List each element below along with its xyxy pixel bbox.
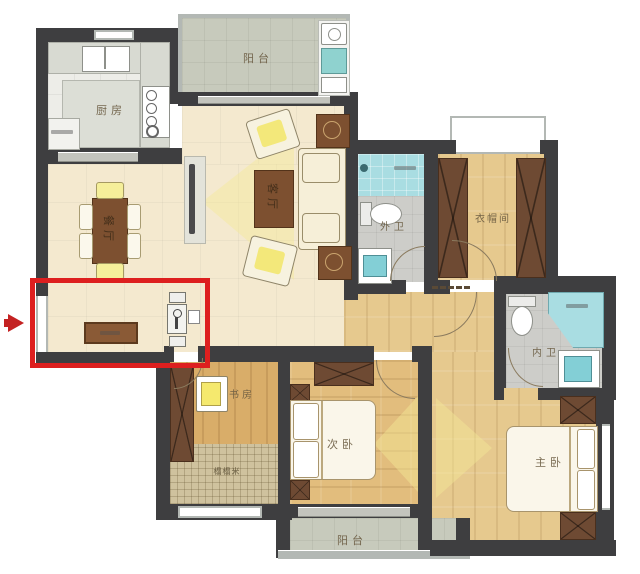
second-bedroom-dresser <box>314 362 374 386</box>
dining-chair-left-1 <box>79 204 93 230</box>
wall-cloakroom-east <box>544 140 558 294</box>
master-bath-shower-mini-label <box>566 304 588 308</box>
master-bath-toilet-bowl <box>511 306 533 336</box>
balcony-sliding-door <box>198 96 330 104</box>
guest-bath-shower-mini-label <box>394 166 416 170</box>
kitchen-label: 厨房 <box>76 102 146 118</box>
master-bedroom-nightstand-top <box>560 396 596 424</box>
wall-master-bath-south-left <box>494 388 504 400</box>
sofa <box>298 148 346 250</box>
washing-machine-icon <box>321 23 347 45</box>
stove-burner <box>146 103 157 114</box>
wall-guest-bath-cloakroom-divider <box>424 142 438 294</box>
guest-bath-label: 外卫 <box>372 218 416 233</box>
wall-master-bath-north <box>494 276 616 292</box>
kitchen-stove <box>142 86 170 138</box>
dining-chair-top <box>96 182 124 199</box>
wall-master-bath-west <box>494 288 506 388</box>
tv-feature-wall <box>184 156 206 244</box>
guest-bath-sink <box>358 248 392 284</box>
dining-chair-left-2 <box>79 233 93 259</box>
side-table-top <box>316 114 350 148</box>
second-bedroom-label: 次卧 <box>312 436 372 452</box>
kitchen-cabinet-mini-label <box>51 130 73 134</box>
wall-master-bedroom-south <box>430 540 616 556</box>
balcony-top-label: 阳台 <box>228 50 288 66</box>
second-bedroom-nightstand-bottom <box>290 480 310 500</box>
guest-bath-showerhead-icon <box>360 164 368 172</box>
tv-icon <box>189 164 195 234</box>
cloakroom-window <box>450 116 546 154</box>
kitchen-sink <box>82 46 130 72</box>
wall-second-master-divider <box>418 346 432 550</box>
wall-master-bath-east <box>602 276 616 400</box>
master-bedroom-label: 主卧 <box>520 454 580 470</box>
side-table-bottom <box>318 246 352 280</box>
master-bedroom-window <box>602 424 610 510</box>
kitchen-window <box>94 30 134 40</box>
dining-chair-right-1 <box>127 204 141 230</box>
kitchen-sliding-door <box>58 152 138 162</box>
study-label: 书房 <box>216 386 268 401</box>
guest-bath-shower-floor <box>358 154 424 196</box>
laundry-cabinet-icon <box>321 77 347 93</box>
corridor-opening-dashes <box>432 286 470 289</box>
dining-label: 餐厅 <box>101 200 117 260</box>
master-bath-label: 内卫 <box>522 344 570 359</box>
second-bedroom-balcony-slider <box>298 507 410 517</box>
stove-burner <box>146 125 159 138</box>
wall-study-west <box>156 352 170 520</box>
highlight-rectangle <box>30 278 210 368</box>
balcony-bottom-label: 阳台 <box>322 532 382 548</box>
stove-burner <box>146 90 157 101</box>
kitchen-lower-cabinet <box>48 118 80 150</box>
floor-plan: 厨房 阳台 餐厅 客厅 外卫 衣帽间 内卫 书房 榻榻米 次卧 主卧 阳台 <box>0 0 640 574</box>
master-bedroom-nightstand-bottom <box>560 512 596 540</box>
wall-dining-west <box>36 156 48 296</box>
laundry-sink-icon <box>321 48 347 74</box>
cloakroom-label: 衣帽间 <box>458 210 528 225</box>
wall-cloakroom-north-left <box>436 140 456 154</box>
kitchen-sink-divider <box>104 47 106 69</box>
red-arrow-tail <box>4 319 10 327</box>
wall-study-second-divider <box>278 350 290 518</box>
study-window <box>178 506 262 518</box>
tatami-label: 榻榻米 <box>200 466 254 477</box>
living-label: 客厅 <box>265 168 281 228</box>
wall-kitchen-left <box>36 28 48 164</box>
dining-chair-right-2 <box>127 233 141 259</box>
red-arrow-icon <box>8 314 24 332</box>
